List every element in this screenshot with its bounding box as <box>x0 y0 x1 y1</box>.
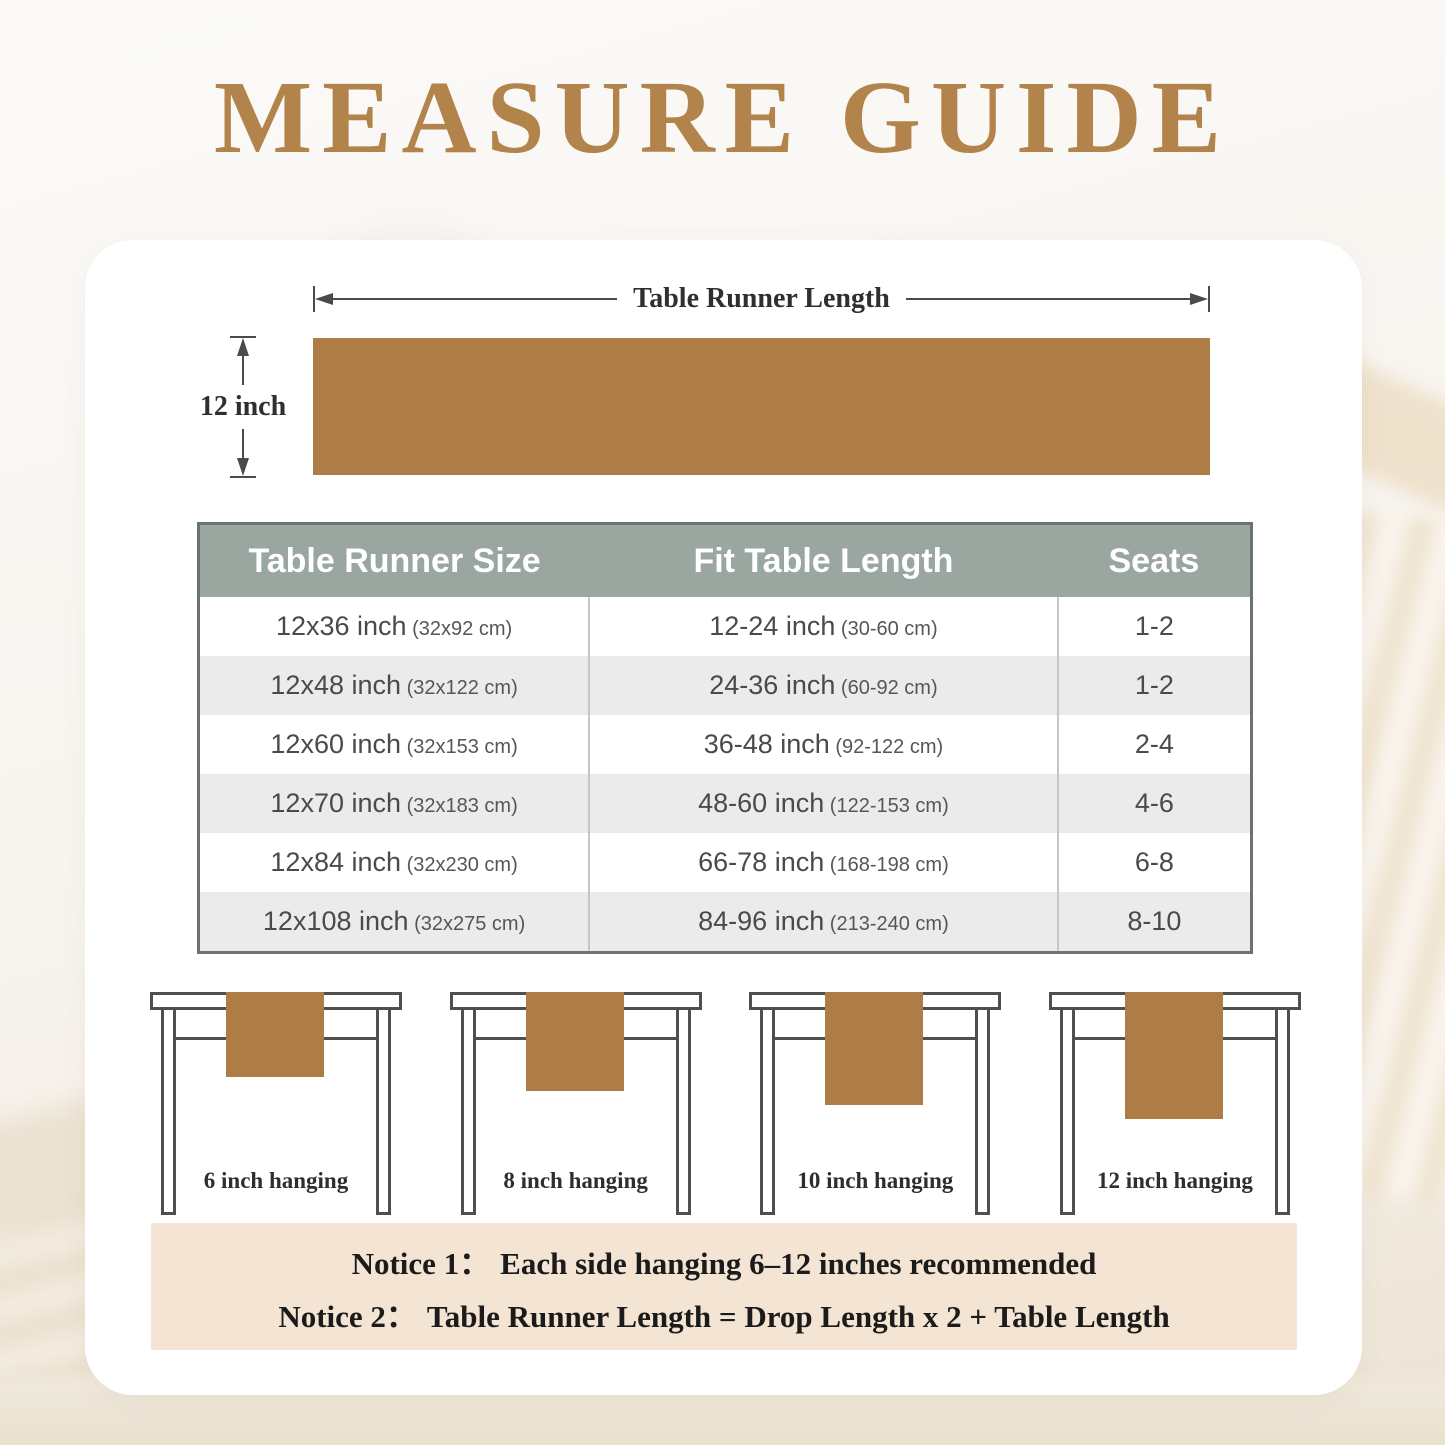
column-header: Seats <box>1058 524 1252 598</box>
seats-cell: 1-2 <box>1058 597 1252 656</box>
hanging-label: 6 inch hanging <box>150 1168 402 1194</box>
table-row: 12x36 inch (32x92 cm)12-24 inch (30-60 c… <box>199 597 1252 656</box>
dimension-end-tick <box>1208 286 1210 312</box>
table-row: 12x70 inch (32x183 cm)48-60 inch (122-15… <box>199 774 1252 833</box>
length-dimension: Table Runner Length <box>313 284 1210 314</box>
width-dimension-label: 12 inch <box>200 385 286 429</box>
hanging-diagram: 6 inch hanging <box>150 992 402 1227</box>
runner-size-cell: 12x60 inch (32x153 cm) <box>199 715 590 774</box>
hanging-diagram: 10 inch hanging <box>749 992 1001 1227</box>
runner-size-cell: 12x70 inch (32x183 cm) <box>199 774 590 833</box>
hanging-label: 10 inch hanging <box>749 1168 1001 1194</box>
fit-length-cell: 66-78 inch (168-198 cm) <box>589 833 1058 892</box>
fit-length-cell: 12-24 inch (30-60 cm) <box>589 597 1058 656</box>
size-table: Table Runner SizeFit Table LengthSeats 1… <box>197 522 1253 954</box>
fit-length-cell: 24-36 inch (60-92 cm) <box>589 656 1058 715</box>
notice-1-label: Notice 1： <box>352 1246 491 1281</box>
hanging-diagram: 12 inch hanging <box>1049 992 1301 1227</box>
runner-size-cell: 12x84 inch (32x230 cm) <box>199 833 590 892</box>
arrowhead-up-icon <box>237 338 249 356</box>
notice-1-text: Each side hanging 6–12 inches recommende… <box>500 1246 1096 1281</box>
column-header: Fit Table Length <box>589 524 1058 598</box>
seats-cell: 6-8 <box>1058 833 1252 892</box>
runner-drape-graphic <box>1125 992 1223 1119</box>
hanging-diagram: 8 inch hanging <box>450 992 702 1227</box>
fit-length-cell: 84-96 inch (213-240 cm) <box>589 892 1058 953</box>
dimension-end-tick <box>230 476 256 478</box>
fit-length-cell: 36-48 inch (92-122 cm) <box>589 715 1058 774</box>
dimension-line <box>333 298 617 300</box>
column-header: Table Runner Size <box>199 524 590 598</box>
runner-size-cell: 12x36 inch (32x92 cm) <box>199 597 590 656</box>
seats-cell: 4-6 <box>1058 774 1252 833</box>
runner-drape-graphic <box>526 992 624 1091</box>
seats-cell: 1-2 <box>1058 656 1252 715</box>
notice-box: Notice 1：Each side hanging 6–12 inches r… <box>151 1223 1297 1350</box>
table-row: 12x60 inch (32x153 cm)36-48 inch (92-122… <box>199 715 1252 774</box>
runner-size-cell: 12x48 inch (32x122 cm) <box>199 656 590 715</box>
hanging-label: 12 inch hanging <box>1049 1168 1301 1194</box>
notice-2-text: Table Runner Length = Drop Length x 2 + … <box>427 1299 1170 1334</box>
arrowhead-down-icon <box>237 458 249 476</box>
dimension-line <box>906 298 1190 300</box>
size-table-header-row: Table Runner SizeFit Table LengthSeats <box>199 524 1252 598</box>
page-title: MEASURE GUIDE <box>0 58 1445 177</box>
runner-drape-graphic <box>825 992 923 1105</box>
hanging-diagrams-row: 6 inch hanging8 inch hanging10 inch hang… <box>150 992 1301 1227</box>
table-row: 12x108 inch (32x275 cm)84-96 inch (213-2… <box>199 892 1252 953</box>
width-dimension: 12 inch <box>197 336 289 478</box>
hanging-label: 8 inch hanging <box>450 1168 702 1194</box>
runner-size-cell: 12x108 inch (32x275 cm) <box>199 892 590 953</box>
dimension-line <box>242 429 244 458</box>
fit-length-cell: 48-60 inch (122-153 cm) <box>589 774 1058 833</box>
runner-drape-graphic <box>226 992 324 1077</box>
notice-line-1: Notice 1：Each side hanging 6–12 inches r… <box>352 1238 1097 1283</box>
dimension-line <box>242 356 244 385</box>
table-row: 12x84 inch (32x230 cm)66-78 inch (168-19… <box>199 833 1252 892</box>
seats-cell: 8-10 <box>1058 892 1252 953</box>
table-row: 12x48 inch (32x122 cm)24-36 inch (60-92 … <box>199 656 1252 715</box>
size-table-wrapper: Table Runner SizeFit Table LengthSeats 1… <box>197 522 1253 954</box>
table-runner-swatch <box>313 338 1210 475</box>
arrowhead-left-icon <box>315 293 333 305</box>
notice-line-2: Notice 2：Table Runner Length = Drop Leng… <box>278 1291 1169 1336</box>
arrowhead-right-icon <box>1190 293 1208 305</box>
measure-guide-infographic: MEASURE GUIDE Table Runner Length 12 inc… <box>0 0 1445 1445</box>
notice-2-label: Notice 2： <box>278 1299 417 1334</box>
measure-guide-card: Table Runner Length 12 inch Table Runner… <box>85 240 1362 1395</box>
seats-cell: 2-4 <box>1058 715 1252 774</box>
length-dimension-label: Table Runner Length <box>617 283 906 315</box>
